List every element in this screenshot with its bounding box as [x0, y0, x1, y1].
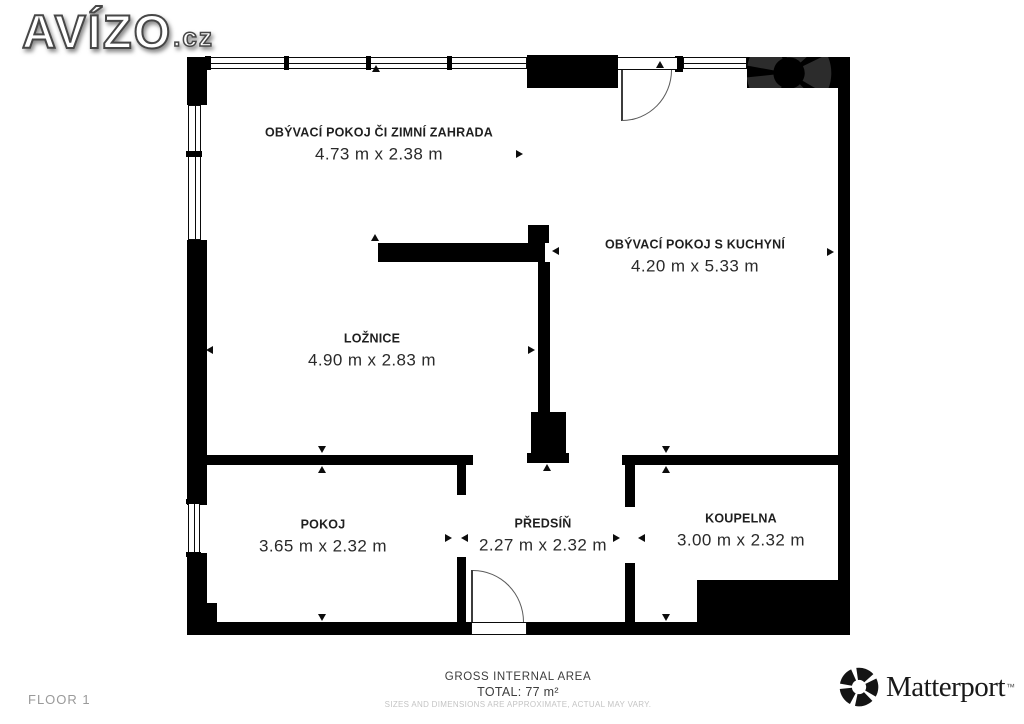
- door-swing-arc: [473, 570, 524, 622]
- room-label: KOUPELNA 3.00 m x 2.32 m: [677, 512, 805, 551]
- chimney-base: [527, 453, 569, 463]
- wall-segment: [838, 57, 850, 635]
- wall-segment: [457, 455, 466, 495]
- wall-segment: [538, 262, 550, 412]
- floor-label: FLOOR 1: [28, 692, 91, 707]
- room-name: OBÝVACÍ POKOJ ČI ZIMNÍ ZAHRADA: [265, 126, 493, 140]
- direction-marker-icon: [318, 614, 326, 621]
- wall-segment: [187, 57, 207, 105]
- chimney-block: [531, 412, 566, 453]
- matterport-logo: Matterport™: [838, 666, 1015, 708]
- direction-marker-icon: [516, 150, 523, 158]
- floorplan-page: AVÍZO.cz: [0, 0, 1024, 724]
- window: [683, 57, 747, 69]
- gross-area-total: TOTAL: 77 m²: [477, 685, 559, 699]
- disclaimer-text: SIZES AND DIMENSIONS ARE APPROXIMATE, AC…: [385, 700, 652, 709]
- wall-segment: [187, 622, 471, 635]
- floorplan-drawing: OBÝVACÍ POKOJ ČI ZIMNÍ ZAHRADA 4.73 m x …: [0, 0, 1024, 724]
- direction-marker-icon: [662, 614, 670, 621]
- room-name: POKOJ: [259, 518, 387, 532]
- avizo-logo: AVÍZO.cz: [22, 4, 214, 59]
- room-dimensions: 4.90 m x 2.83 m: [308, 351, 436, 371]
- avizo-logo-text: AVÍZO: [22, 5, 172, 58]
- room-label: POKOJ 3.65 m x 2.32 m: [259, 518, 387, 557]
- direction-marker-icon: [662, 466, 670, 473]
- direction-marker-icon: [445, 534, 452, 542]
- wall-segment: [457, 557, 466, 622]
- room-label: OBÝVACÍ POKOJ ČI ZIMNÍ ZAHRADA 4.73 m x …: [265, 126, 493, 165]
- wall-segment: [378, 243, 545, 262]
- avizo-logo-tld: .cz: [173, 22, 214, 52]
- direction-marker-icon: [613, 534, 620, 542]
- window: [188, 503, 200, 553]
- wall-segment: [527, 55, 618, 88]
- door-opening: [618, 57, 677, 70]
- window-mullion: [186, 552, 201, 557]
- room-dimensions: 4.20 m x 5.33 m: [605, 257, 785, 277]
- direction-marker-icon: [827, 248, 834, 256]
- gross-area-title: GROSS INTERNAL AREA: [445, 671, 591, 683]
- bathroom-wall-block: [697, 580, 850, 635]
- direction-marker-icon: [371, 234, 379, 241]
- direction-marker-icon: [528, 346, 535, 354]
- room-label: PŘEDSÍŇ 2.27 m x 2.32 m: [479, 517, 607, 556]
- matterport-wordmark: Matterport: [886, 671, 1005, 704]
- direction-marker-icon: [461, 534, 468, 542]
- direction-marker-icon: [543, 464, 551, 471]
- direction-marker-icon: [552, 247, 559, 255]
- wall-segment: [622, 455, 838, 465]
- direction-marker-icon: [662, 446, 670, 453]
- matterport-watermark-icon: [747, 57, 835, 88]
- room-name: LOŽNICE: [308, 332, 436, 346]
- wall-segment: [528, 225, 549, 243]
- wall-segment: [747, 57, 838, 88]
- room-label: OBÝVACÍ POKOJ S KUCHYNÍ 4.20 m x 5.33 m: [605, 238, 785, 277]
- wall-segment: [625, 465, 635, 507]
- wall-segment: [625, 563, 635, 622]
- room-label: LOŽNICE 4.90 m x 2.83 m: [308, 332, 436, 371]
- matterport-pinwheel-icon: [838, 666, 880, 708]
- direction-marker-icon: [372, 65, 380, 72]
- direction-marker-icon: [656, 61, 664, 68]
- wall-segment: [187, 455, 473, 465]
- wall-segment: [187, 240, 207, 505]
- window-mullion: [186, 151, 202, 157]
- window-mullion: [447, 56, 452, 70]
- direction-marker-icon: [318, 466, 326, 473]
- window-mullion: [366, 56, 371, 70]
- door-swing-arc: [622, 70, 672, 121]
- direction-marker-icon: [318, 446, 326, 453]
- door-opening: [471, 622, 527, 635]
- room-dimensions: 3.65 m x 2.32 m: [259, 537, 387, 557]
- room-dimensions: 2.27 m x 2.32 m: [479, 536, 607, 556]
- direction-marker-icon: [638, 534, 645, 542]
- room-dimensions: 3.00 m x 2.32 m: [677, 531, 805, 551]
- window-mullion: [186, 499, 201, 504]
- window: [188, 105, 201, 240]
- direction-marker-icon: [206, 346, 213, 354]
- trademark-symbol: ™: [1006, 682, 1015, 692]
- window-mullion: [284, 56, 289, 70]
- room-name: OBÝVACÍ POKOJ S KUCHYNÍ: [605, 238, 785, 252]
- room-name: PŘEDSÍŇ: [479, 517, 607, 531]
- room-dimensions: 4.73 m x 2.38 m: [265, 145, 493, 165]
- room-name: KOUPELNA: [677, 512, 805, 526]
